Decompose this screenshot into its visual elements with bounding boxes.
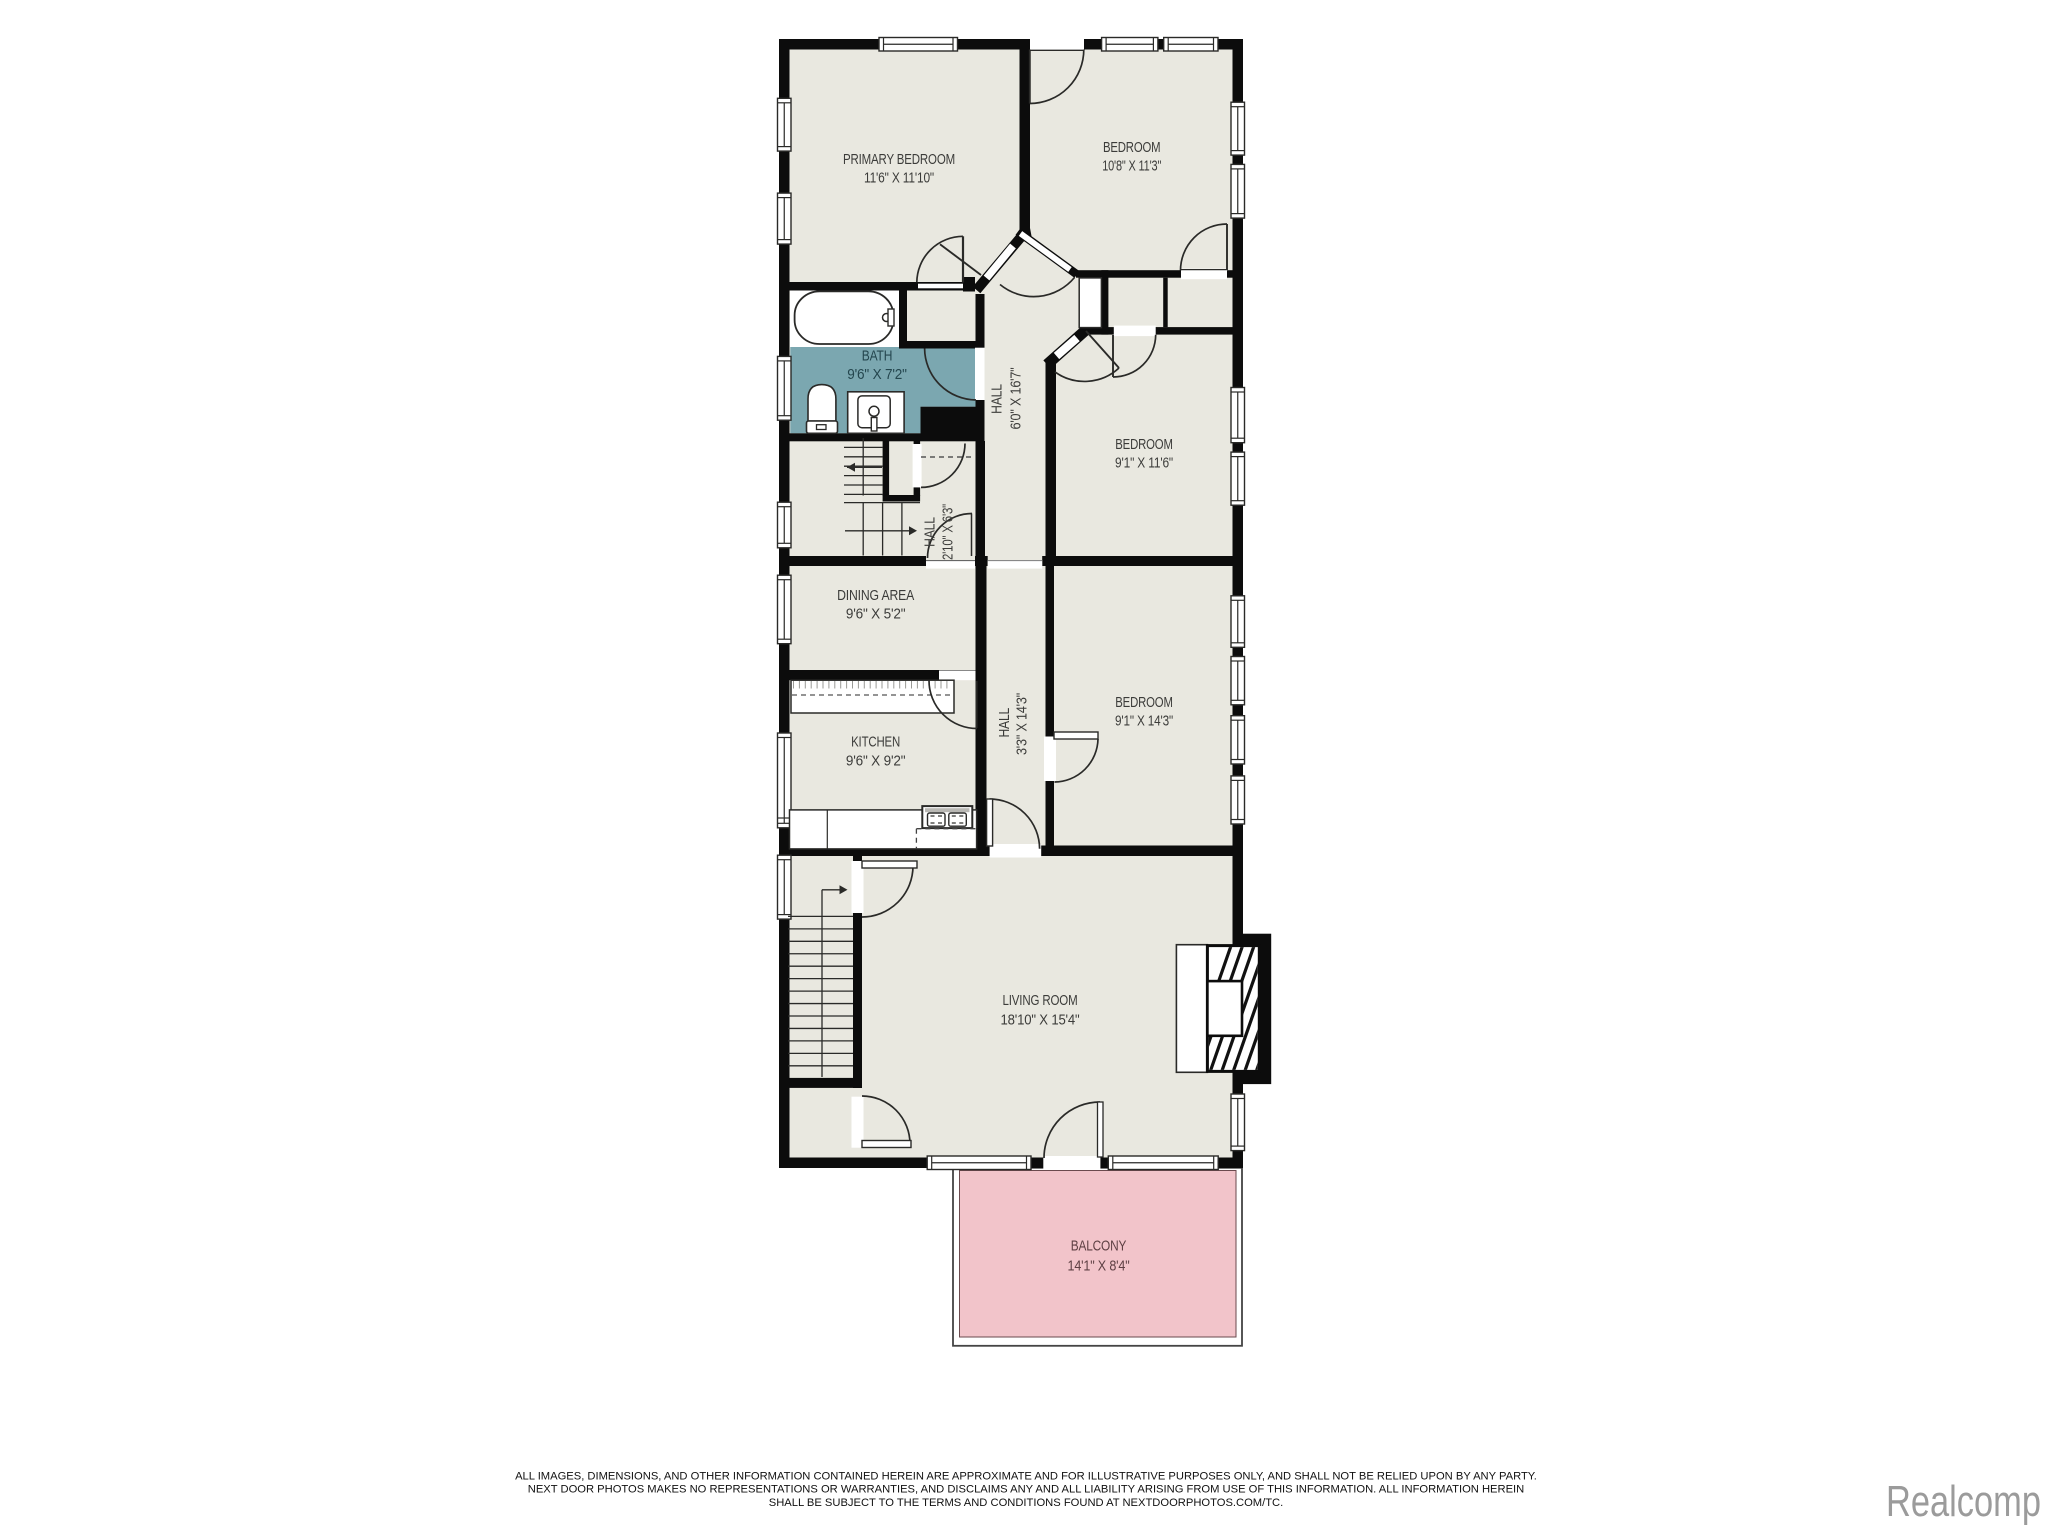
svg-text:BEDROOM: BEDROOM <box>1115 695 1173 711</box>
svg-text:9'6" X 9'2": 9'6" X 9'2" <box>846 753 906 769</box>
svg-text:NEXT DOOR PHOTOS MAKES NO REPR: NEXT DOOR PHOTOS MAKES NO REPRESENTATION… <box>528 1484 1524 1496</box>
svg-text:ALL IMAGES, DIMENSIONS, AND OT: ALL IMAGES, DIMENSIONS, AND OTHER INFORM… <box>515 1470 1537 1482</box>
svg-text:9'1" X 11'6": 9'1" X 11'6" <box>1115 456 1173 472</box>
svg-text:BEDROOM: BEDROOM <box>1103 140 1161 156</box>
svg-text:LIVING ROOM: LIVING ROOM <box>1003 993 1078 1009</box>
svg-text:HALL: HALL <box>990 384 1006 414</box>
svg-text:11'6" X 11'10": 11'6" X 11'10" <box>864 171 934 187</box>
svg-text:10'8" X 11'3": 10'8" X 11'3" <box>1102 159 1161 175</box>
svg-text:PRIMARY BEDROOM: PRIMARY BEDROOM <box>843 152 955 168</box>
svg-text:Realcomp: Realcomp <box>1886 1477 2041 1526</box>
svg-text:9'6" X 7'2": 9'6" X 7'2" <box>847 367 907 383</box>
svg-text:18'10" X 15'4": 18'10" X 15'4" <box>1001 1012 1080 1028</box>
svg-text:HALL: HALL <box>923 517 939 547</box>
svg-text:9'6" X 5'2": 9'6" X 5'2" <box>846 607 906 623</box>
svg-text:2'10" X 6'3": 2'10" X 6'3" <box>941 504 957 560</box>
svg-text:KITCHEN: KITCHEN <box>851 735 900 751</box>
svg-text:3'3" X 14'3": 3'3" X 14'3" <box>1015 693 1031 755</box>
svg-text:BATH: BATH <box>862 349 893 365</box>
svg-text:SHALL BE SUBJECT TO THE TERMS: SHALL BE SUBJECT TO THE TERMS AND CONDIT… <box>769 1497 1284 1509</box>
svg-text:HALL: HALL <box>997 708 1013 738</box>
svg-text:6'0" X 16'7": 6'0" X 16'7" <box>1009 367 1025 429</box>
svg-text:BALCONY: BALCONY <box>1071 1239 1127 1255</box>
svg-text:BEDROOM: BEDROOM <box>1115 437 1173 453</box>
svg-text:14'1" X 8'4": 14'1" X 8'4" <box>1068 1259 1130 1275</box>
svg-text:DINING AREA: DINING AREA <box>837 588 914 604</box>
svg-text:9'1" X 14'3": 9'1" X 14'3" <box>1115 714 1173 730</box>
